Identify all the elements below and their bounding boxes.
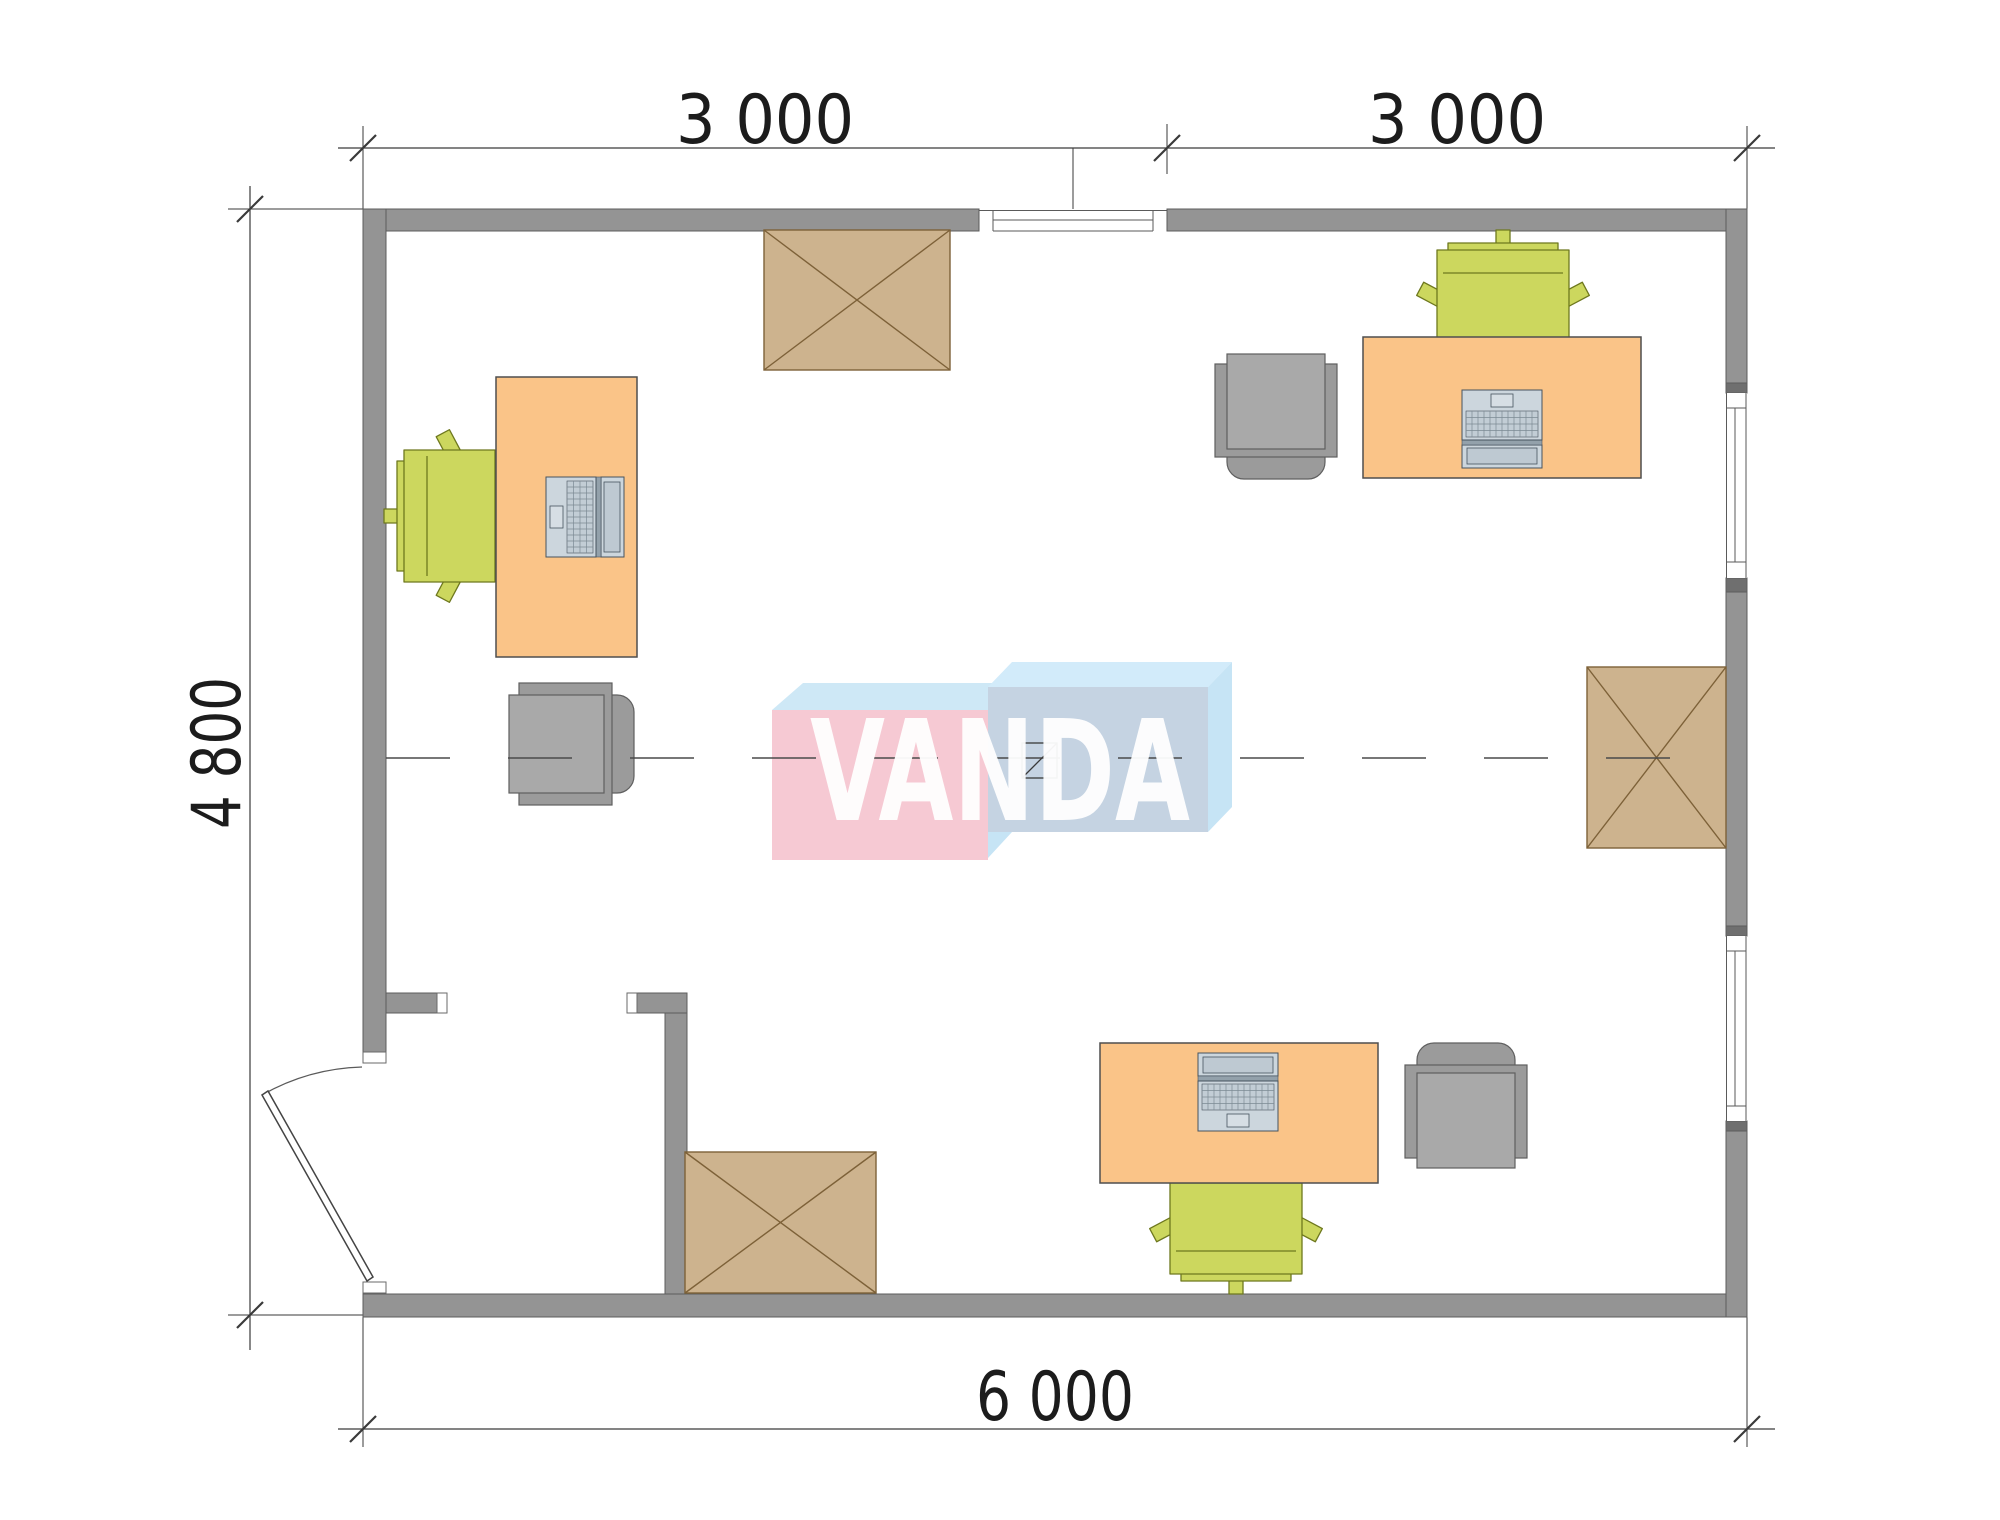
dimension-label-left: 4 800 xyxy=(178,677,257,829)
window-cap xyxy=(1726,578,1747,592)
crossed-box-top xyxy=(764,230,950,370)
window-top xyxy=(979,209,1167,231)
wall-left-upper xyxy=(363,209,386,1052)
partition-cap xyxy=(437,993,447,1013)
wall-right-lower xyxy=(1726,1131,1747,1317)
wall-right-middle xyxy=(1726,592,1747,926)
office-floor-plan-page: 3 000 3 000 4 800 6 000 xyxy=(0,0,2000,1520)
logo-cube-blue-side xyxy=(1208,662,1232,832)
wall-bottom xyxy=(363,1294,1747,1317)
armchair-bottom-right xyxy=(1405,1043,1527,1168)
window-right-upper xyxy=(1726,393,1747,578)
window-cap xyxy=(1726,383,1747,393)
window-right-lower xyxy=(1726,936,1747,1121)
armchair-top-right xyxy=(1215,354,1337,479)
partition-cap xyxy=(627,993,637,1013)
laptop-top-right xyxy=(1462,390,1542,468)
dimension-label-top-left: 3 000 xyxy=(676,81,854,160)
wall-top-left-segment xyxy=(363,209,979,231)
wall-right-upper xyxy=(1726,209,1747,383)
dimension-label-bottom: 6 000 xyxy=(976,1358,1134,1437)
partition-stub-right xyxy=(637,993,687,1013)
crossed-box-bottom xyxy=(685,1152,876,1293)
window-cap xyxy=(1726,926,1747,936)
window-cap xyxy=(1726,1121,1747,1131)
wall-top-right-segment xyxy=(1167,209,1747,231)
floor-plan-canvas: 3 000 3 000 4 800 6 000 xyxy=(0,0,2000,1520)
dimension-label-top-right: 3 000 xyxy=(1368,81,1546,160)
door-sill-top xyxy=(363,1052,386,1063)
logo-cube-blue-top xyxy=(988,662,1232,687)
laptop-top-left xyxy=(546,477,624,557)
laptop-bottom xyxy=(1198,1053,1278,1131)
partition-stub-left xyxy=(386,993,437,1013)
armchair-middle-left xyxy=(509,683,634,805)
logo-text: VANDA xyxy=(810,691,1190,854)
partition-vertical xyxy=(665,1013,687,1294)
door-sill-bottom xyxy=(363,1282,386,1293)
